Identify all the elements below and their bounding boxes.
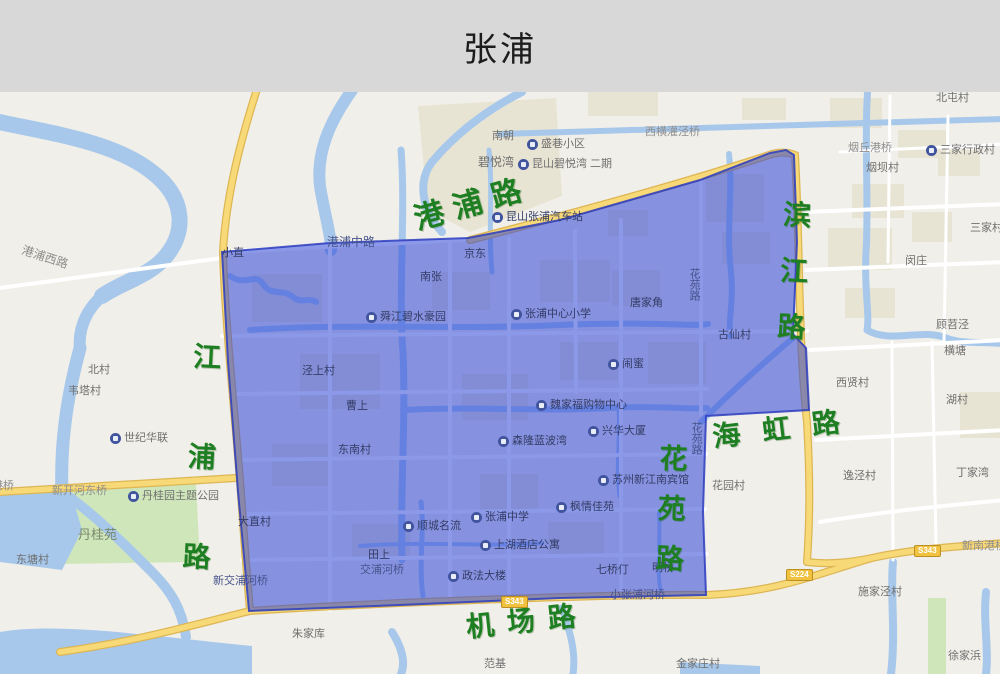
map-label-text: 三家行政村 [940,144,995,156]
map-label: 金家庄村 [676,658,720,670]
map-label-text: 三家村 [970,222,1000,234]
map-label: 唐家角 [630,297,663,309]
road-shield: S343 [914,545,941,557]
map-label: 曹上 [346,400,368,412]
map-label-text: 政法大楼 [462,570,506,582]
poi-icon [588,426,599,437]
map-label-text: 范基 [484,658,506,670]
map-label: 花苑路 [688,268,700,301]
map-label: 张浦中学 [471,511,529,523]
map-label-text: 港浦中路 [327,236,375,249]
map-label-text: 新南港桥 [962,540,1000,552]
map-label: 昆山碧悦湾 二期 [518,158,612,170]
map-label: 顺城名流 [403,520,461,532]
map-label: 花苑路 [690,422,702,455]
map-label-text: 盛巷小区 [541,138,585,150]
poi-icon [448,571,459,582]
map-label-text: 大直村 [238,516,271,528]
map-label-text: 花苑路 [688,268,700,301]
map-label: 世纪华联 [110,432,168,444]
map-label: 盛巷小区 [527,138,585,150]
map-label: 南朝 [492,130,514,142]
map-label: 森隆蓝波湾 [498,435,567,447]
poi-icon [926,145,937,156]
map-label-text: 闵庄 [905,255,927,267]
map-label: 丹桂苑 [78,528,117,542]
map-label-text: 七桥仃 [596,564,629,576]
map-label-text: 交浦河桥 [360,564,404,576]
map-label: 东南村 [338,444,371,456]
poi-icon [128,491,139,502]
map-label-text: 泾上村 [302,365,335,377]
map-label: 交浦河桥 [360,564,404,576]
map-label-text: 西贤村 [836,377,869,389]
poi-icon [608,359,619,370]
map-label-text: 朱家库 [292,628,325,640]
map-label-text: 上湖酒店公寓 [494,539,560,551]
map-label-text: 港浦西路 [20,244,70,271]
map-label: 施家泾村 [858,586,902,598]
map-label-text: 西横灌泾桥 [645,126,700,138]
map-label: 逸泾村 [843,470,876,482]
map-label: 小直 [222,247,244,259]
map-label-text: 新开河东桥 [52,485,107,497]
map-label: 范基 [484,658,506,670]
map-label: 湖村 [946,394,968,406]
poi-icon [498,436,509,447]
map-label: 上湖酒店公寓 [480,539,560,551]
map-label: 新开河东桥 [52,485,107,497]
map-label: 闵庄 [905,255,927,267]
map-labels-layer: 港浦西路南朝盛巷小区碧悦湾昆山碧悦湾 二期西横灌泾桥北屯村烟丘港桥烟坝村三家行政… [0,92,1000,674]
map-label: 徐家浜 [948,650,981,662]
map-label: 港浦西路 [20,244,70,271]
map-label: 烟坝村 [866,162,899,174]
road-name-label: 花苑路 [647,443,692,594]
road-name-label: 海虹路 [710,398,864,456]
map-label: 政法大楼 [448,570,506,582]
poi-icon [110,433,121,444]
road-name-label: 江浦路 [170,341,226,643]
map-label-text: 新交浦河桥 [213,575,268,587]
map-label: 田上 [368,549,390,561]
map-label-text: 花苑路 [690,422,702,455]
map-label: 南张 [420,271,442,283]
map-label-text: 烟丘港桥 [848,142,892,154]
map-label: 七桥仃 [596,564,629,576]
map-label: 古仙村 [718,329,751,341]
map-label: 新交浦河桥 [213,575,268,587]
map-label: 西贤村 [836,377,869,389]
map-label-text: 逸泾村 [843,470,876,482]
screenshot-root: 张浦 [0,0,1000,674]
map-label-text: 施家泾村 [858,586,902,598]
page-title: 张浦 [463,22,537,71]
map-label: 三家村 [970,222,1000,234]
road-shield: S343 [501,596,528,608]
map-label: 北村 [88,364,110,376]
map-label-text: 昆山张浦汽车站 [506,211,583,223]
map-label-text: 顾苕泾 [936,319,969,331]
map-label: 舜江碧水豪园 [366,311,446,323]
map-label: 新南港桥 [962,540,1000,552]
poi-icon [556,502,567,513]
map-label-text: 金家庄村 [676,658,720,670]
poi-icon [536,400,547,411]
map-label: 西横灌泾桥 [645,126,700,138]
map-label-text: 港桥 [0,480,14,492]
poi-icon [480,540,491,551]
map-label-text: 北村 [88,364,110,376]
map-label: 韦塔村 [68,385,101,397]
map-label-text: 徐家浜 [948,650,981,662]
map-label-text: 闹蜜 [622,358,644,370]
map-label-text: 北屯村 [936,92,969,104]
map-label-text: 丁家湾 [956,467,989,479]
map-label-text: 田上 [368,549,390,561]
map-label-text: 丹桂苑 [78,528,117,542]
map-label-text: 曹上 [346,400,368,412]
map-label-text: 南朝 [492,130,514,142]
map-label: 魏家福购物中心 [536,399,627,411]
map-label-text: 南张 [420,271,442,283]
map-label-text: 韦塔村 [68,385,101,397]
map-label-text: 花园村 [712,480,745,492]
map-label: 张浦中心小学 [511,308,591,320]
map-label-text: 唐家角 [630,297,663,309]
map-label: 丁家湾 [956,467,989,479]
map-label-text: 烟坝村 [866,162,899,174]
poi-icon [403,521,414,532]
map-canvas[interactable]: 港浦西路南朝盛巷小区碧悦湾昆山碧悦湾 二期西横灌泾桥北屯村烟丘港桥烟坝村三家行政… [0,92,1000,674]
map-label: 横塘 [944,345,966,357]
road-shield: S224 [786,569,813,581]
map-label: 泾上村 [302,365,335,377]
map-label: 东塘村 [16,554,49,566]
map-label-text: 枫情佳苑 [570,501,614,513]
map-label: 港桥 [0,480,14,492]
poi-icon [527,139,538,150]
map-label-text: 舜江碧水豪园 [380,311,446,323]
map-label-text: 湖村 [946,394,968,406]
road-name-label: 港浦路 [408,163,535,238]
poi-icon [471,512,482,523]
map-label-text: 世纪华联 [124,432,168,444]
poi-icon [366,312,377,323]
poi-icon [598,475,609,486]
map-label: 枫情佳苑 [556,501,614,513]
map-label: 顾苕泾 [936,319,969,331]
map-label: 兴华大厦 [588,425,646,437]
map-label-text: 顺城名流 [417,520,461,532]
map-label-text: 张浦中学 [485,511,529,523]
map-label: 朱家库 [292,628,325,640]
map-label-text: 古仙村 [718,329,751,341]
poi-icon [511,309,522,320]
map-label-text: 横塘 [944,345,966,357]
map-label: 闹蜜 [608,358,644,370]
map-label-text: 东南村 [338,444,371,456]
map-label-text: 森隆蓝波湾 [512,435,567,447]
map-label: 花园村 [712,480,745,492]
map-label: 京东 [464,248,486,260]
map-label-text: 京东 [464,248,486,260]
map-label: 三家行政村 [926,144,995,156]
road-name-label: 滨江路 [767,199,816,369]
map-label-text: 小直 [222,247,244,259]
map-label-text: 兴华大厦 [602,425,646,437]
map-label-text: 魏家福购物中心 [550,399,627,411]
title-bar: 张浦 [0,0,1000,92]
map-label: 北屯村 [936,92,969,104]
map-label-text: 张浦中心小学 [525,308,591,320]
map-label-text: 东塘村 [16,554,49,566]
map-label-text: 昆山碧悦湾 二期 [532,158,612,170]
map-label: 港浦中路 [327,236,375,249]
map-label: 大直村 [238,516,271,528]
map-label: 烟丘港桥 [848,142,892,154]
